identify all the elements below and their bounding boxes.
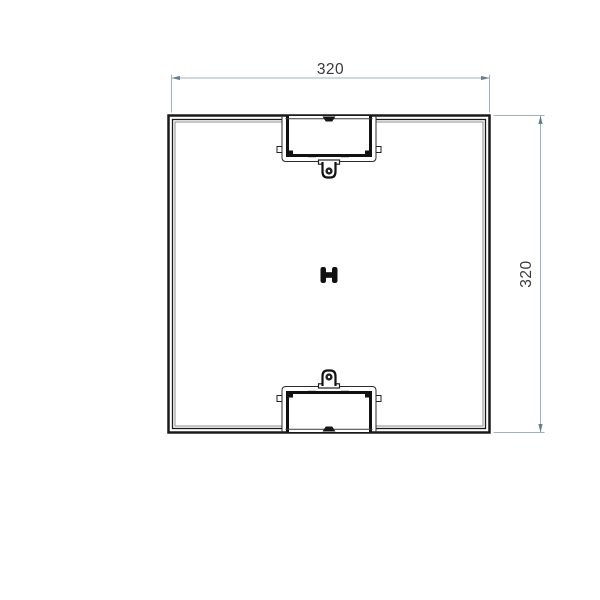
width-dimension-label: 320 bbox=[317, 61, 344, 78]
drawing-canvas: 320 320 bbox=[0, 0, 600, 600]
width-arrow-left bbox=[172, 76, 181, 80]
width-dimension: 320 bbox=[172, 61, 490, 113]
width-arrow-right bbox=[481, 76, 490, 80]
height-dimension-label: 320 bbox=[518, 260, 535, 287]
connector-middle-bar bbox=[325, 272, 333, 278]
height-arrow-top bbox=[538, 116, 542, 125]
height-dimension: 320 bbox=[494, 116, 545, 433]
technical-drawing: 320 320 bbox=[0, 0, 600, 600]
height-arrow-bottom bbox=[538, 424, 542, 433]
